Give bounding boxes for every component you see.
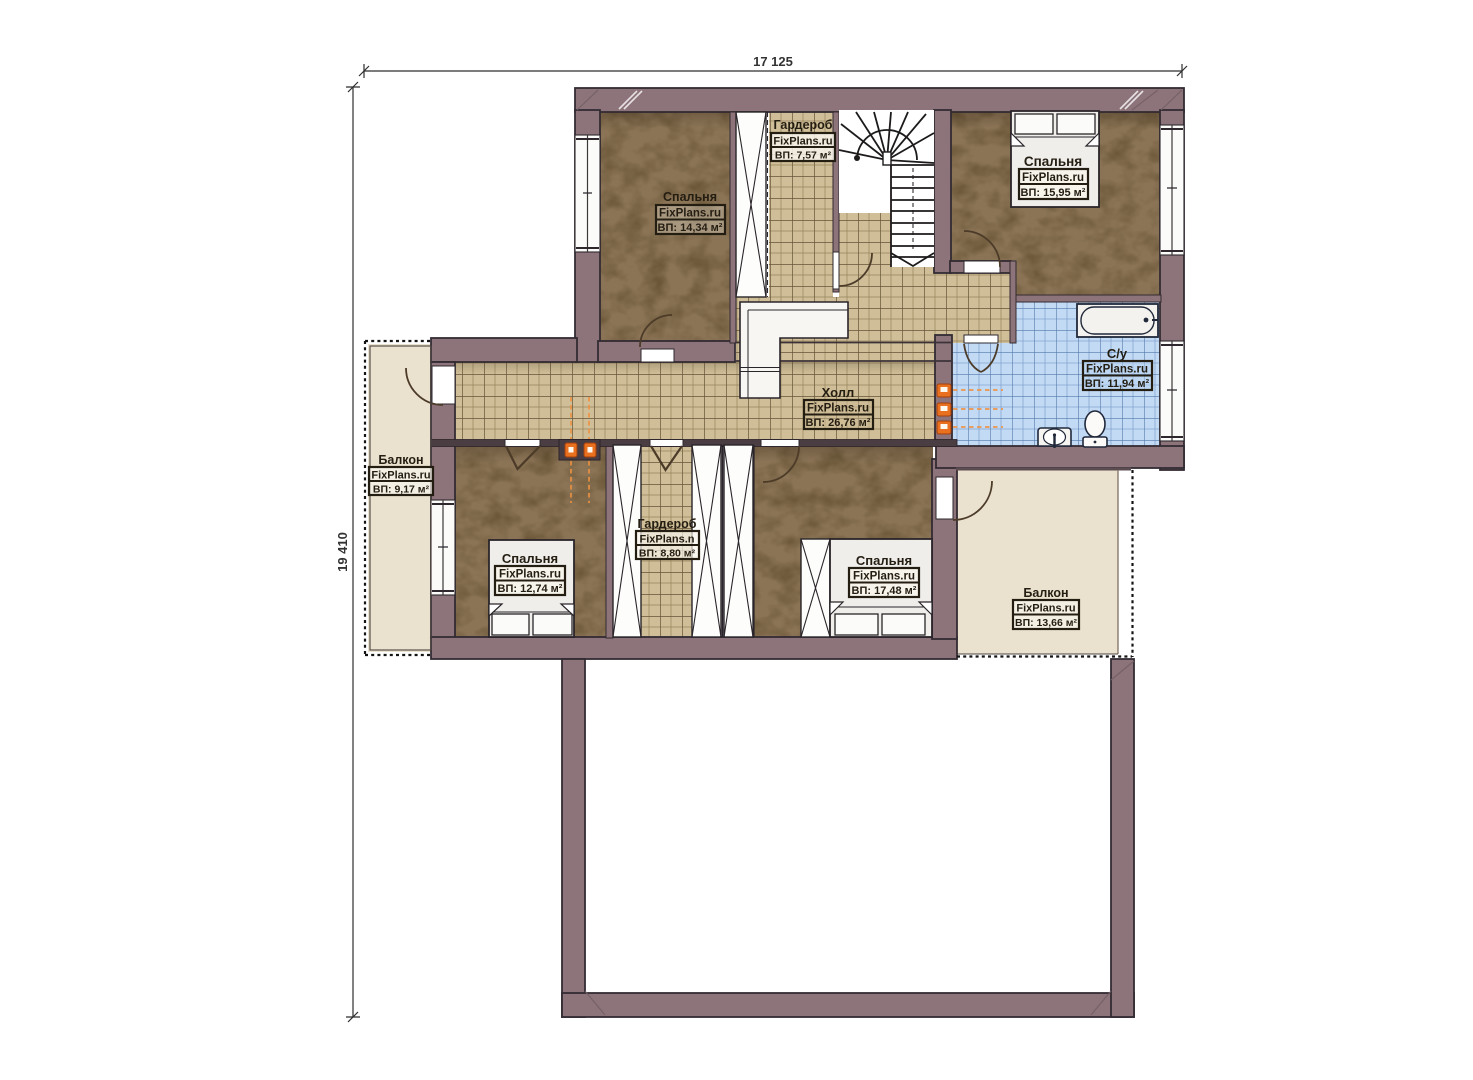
svg-text:FixPlans.ru: FixPlans.ru <box>499 569 561 581</box>
svg-text:FixPlans.n: FixPlans.n <box>639 534 694 546</box>
svg-text:Спальня: Спальня <box>663 190 717 204</box>
svg-text:FixPlans.ru: FixPlans.ru <box>371 470 430 482</box>
svg-text:ВП: 14,34 м²: ВП: 14,34 м² <box>658 222 723 234</box>
svg-text:Балкон: Балкон <box>1023 586 1068 600</box>
svg-text:FixPlans.ru: FixPlans.ru <box>1016 603 1075 615</box>
svg-text:FixPlans.ru: FixPlans.ru <box>807 403 869 415</box>
svg-text:ВП: 15,95 м²: ВП: 15,95 м² <box>1021 187 1086 199</box>
svg-text:ВП: 13,66 м²: ВП: 13,66 м² <box>1015 617 1078 629</box>
svg-text:FixPlans.ru: FixPlans.ru <box>773 136 832 148</box>
svg-text:Спальня: Спальня <box>1024 154 1082 169</box>
svg-text:ВП: 11,94 м²: ВП: 11,94 м² <box>1085 378 1150 390</box>
svg-text:ВП: 26,76 м²: ВП: 26,76 м² <box>806 417 871 429</box>
svg-text:Холл: Холл <box>822 385 855 400</box>
svg-text:С/у: С/у <box>1107 346 1128 361</box>
svg-text:Балкон: Балкон <box>378 453 423 467</box>
svg-text:Гардероб: Гардероб <box>637 517 696 531</box>
svg-text:FixPlans.ru: FixPlans.ru <box>1022 172 1084 184</box>
svg-text:FixPlans.ru: FixPlans.ru <box>659 208 721 220</box>
svg-text:ВП: 8,80 м²: ВП: 8,80 м² <box>639 548 696 560</box>
svg-text:ВП: 12,74 м²: ВП: 12,74 м² <box>498 583 563 595</box>
svg-text:19 410: 19 410 <box>335 532 350 572</box>
svg-text:Спальня: Спальня <box>502 551 558 566</box>
svg-text:FixPlans.ru: FixPlans.ru <box>1086 364 1148 376</box>
svg-text:ВП: 17,48 м²: ВП: 17,48 м² <box>852 585 917 597</box>
svg-text:Гардероб: Гардероб <box>773 118 832 132</box>
svg-text:ВП: 9,17 м²: ВП: 9,17 м² <box>373 484 430 496</box>
svg-text:FixPlans.ru: FixPlans.ru <box>853 571 915 583</box>
svg-text:ВП: 7,57 м²: ВП: 7,57 м² <box>775 150 832 162</box>
svg-text:17 125: 17 125 <box>753 54 793 69</box>
svg-text:Спальня: Спальня <box>856 553 912 568</box>
